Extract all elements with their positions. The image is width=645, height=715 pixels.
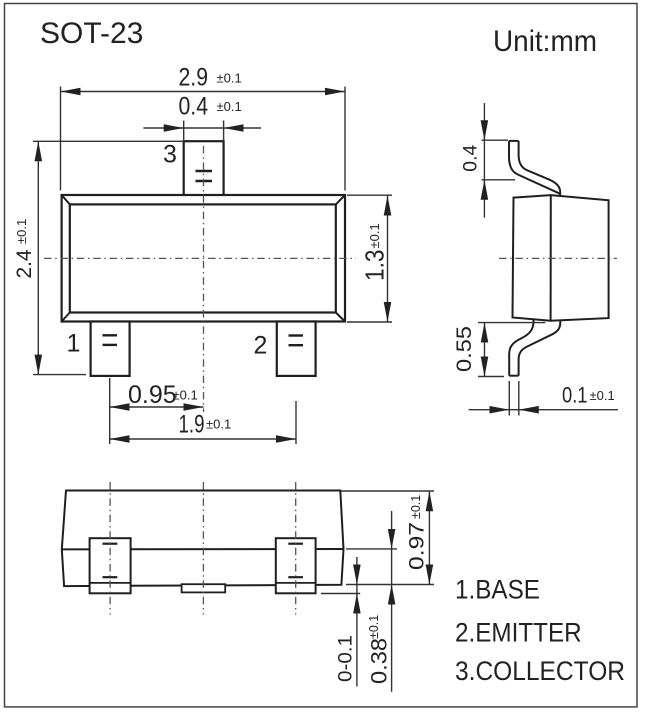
- svg-text:0.4: 0.4: [461, 144, 482, 171]
- svg-text:3: 3: [163, 140, 177, 168]
- svg-text:1.9: 1.9: [179, 410, 205, 438]
- svg-text:2.9: 2.9: [179, 64, 209, 92]
- svg-text:2: 2: [254, 332, 268, 360]
- svg-text:±0.1: ±0.1: [367, 615, 381, 639]
- svg-text:±0.1: ±0.1: [173, 388, 198, 403]
- svg-text:0.1: 0.1: [562, 382, 588, 407]
- svg-text:±0.1: ±0.1: [14, 219, 29, 244]
- svg-text:1.3: 1.3: [360, 250, 390, 282]
- svg-text:Unit:mm: Unit:mm: [493, 25, 597, 58]
- svg-text:±0.1: ±0.1: [367, 223, 382, 248]
- svg-text:SOT-23: SOT-23: [40, 17, 143, 50]
- svg-text:±0.1: ±0.1: [590, 388, 615, 403]
- svg-text:0.4: 0.4: [179, 93, 209, 121]
- svg-text:0.97: 0.97: [406, 522, 429, 570]
- svg-text:2.4: 2.4: [13, 249, 36, 278]
- svg-text:2.EMITTER: 2.EMITTER: [455, 618, 582, 648]
- svg-text:±0.1: ±0.1: [206, 416, 231, 431]
- svg-text:±0.1: ±0.1: [409, 495, 423, 519]
- svg-text:0.95: 0.95: [128, 381, 177, 409]
- svg-text:0.38: 0.38: [367, 638, 392, 684]
- svg-text:0-0.1: 0-0.1: [336, 635, 357, 682]
- svg-text:3.COLLECTOR: 3.COLLECTOR: [455, 656, 625, 686]
- svg-text:±0.1: ±0.1: [217, 99, 242, 114]
- svg-text:1.BASE: 1.BASE: [455, 574, 540, 604]
- svg-text:±0.1: ±0.1: [217, 71, 242, 86]
- svg-text:0.55: 0.55: [453, 326, 476, 372]
- svg-text:1: 1: [67, 330, 81, 358]
